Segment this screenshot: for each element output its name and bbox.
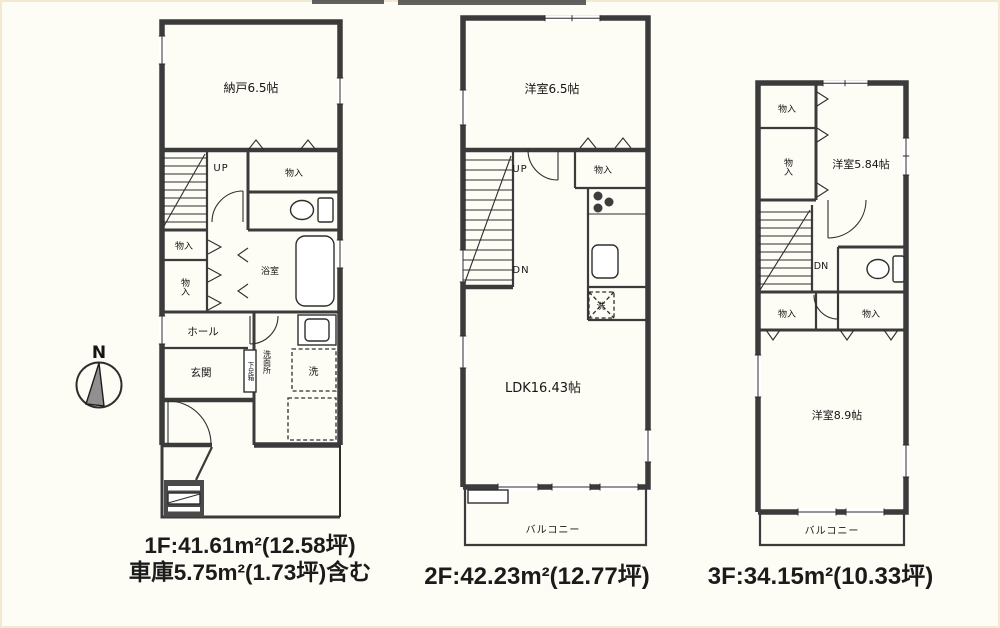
floor3-toilet-icon (867, 256, 904, 282)
room-label-storage: 納戸6.5帖 (223, 80, 278, 95)
room-label-dn: DN (512, 265, 529, 276)
floor1-sink-counter-icon (298, 315, 336, 345)
floor1-area-label: 1F:41.61m²(12.58坪) 車庫5.75m²(1.73坪)含む (100, 532, 400, 586)
room-label-balcony: バルコニー (805, 525, 860, 537)
room-label-bath: 浴室 (261, 265, 279, 277)
room-label-closet-c: 物入 (179, 277, 190, 296)
room-label-bedroom584: 洋室5.84帖 (832, 157, 890, 171)
floor2-sink-icon (592, 245, 618, 278)
floor2-stairs-icon (463, 156, 513, 282)
floor1-area-line1: 1F:41.61m²(12.58坪) (100, 532, 400, 559)
floor3-walls (758, 83, 906, 512)
room-label-closet: 物入 (594, 164, 612, 176)
room-label-bedroom65: 洋室6.5帖 (524, 81, 579, 96)
room-label-shoebox: 下足箱 (246, 361, 254, 382)
floor3-room-labels: 物入 物入 洋室5.84帖 DN 物入 物入 洋室8.9帖 バルコニー (778, 103, 890, 537)
room-label-up: UP (512, 164, 527, 175)
floor2-folding-door-marks (580, 138, 631, 148)
room-label-washer: 洗 (597, 301, 606, 312)
floorplan-sheet: N (0, 0, 1000, 628)
floor1-bathtub-icon (296, 236, 334, 306)
room-label-up: UP (213, 163, 228, 174)
scan-artifact-2 (398, 0, 586, 5)
room-label-closet-top: 物入 (778, 103, 796, 115)
floor2-area-label: 2F:42.23m²(12.77坪) (402, 556, 672, 591)
floor2-plan: 洋室6.5帖 UP DN 物入 洗 LDK16.43帖 バルコニー (455, 10, 655, 555)
room-label-bedroom89: 洋室8.9帖 (812, 408, 863, 422)
floor2-door-arc (528, 150, 558, 180)
floor1-area-line2: 車庫5.75m²(1.73坪)含む (100, 559, 400, 586)
floor3-windows (755, 80, 909, 515)
compass: N (60, 330, 140, 415)
floor3-stairs-icon (758, 210, 812, 290)
floor3-door-arcs (814, 200, 866, 319)
room-label-entrance: 玄関 (191, 366, 212, 379)
floor3-folding-door-marks (766, 92, 898, 340)
floor1-toilet-icon (291, 198, 334, 222)
compass-needle-icon (86, 363, 104, 406)
room-label-washer: 洗 (309, 366, 320, 378)
room-label-washroom: 洗面所 (263, 349, 272, 375)
room-label-closet-ll: 物入 (778, 308, 796, 320)
room-label-closet-lr: 物入 (862, 308, 880, 320)
floor2-stove-icon (588, 192, 648, 215)
floor1-entry-steps-icon (164, 480, 204, 517)
room-label-hall: ホール (187, 326, 219, 338)
floor3-plan: 物入 物入 洋室5.84帖 DN 物入 物入 洋室8.9帖 バルコニー (753, 78, 913, 558)
scan-artifact-1 (312, 0, 384, 4)
floor3-area-label: 3F:34.15m²(10.33坪) (698, 556, 943, 591)
room-label-closet-b: 物入 (175, 240, 193, 252)
floor2-balcony (465, 487, 646, 545)
room-label-closet-mid: 物入 (782, 157, 793, 176)
compass-north-label: N (92, 343, 106, 363)
room-label-ldk: LDK16.43帖 (505, 381, 581, 396)
floor1-dashed-area (288, 398, 336, 440)
floor1-plan: 納戸6.5帖 UP 物入 物入 物入 浴室 ホール 玄関 下足箱 洗面所 洗 (155, 15, 350, 525)
room-label-dn: DN (814, 261, 828, 272)
floor1-stairs-icon (162, 154, 207, 226)
room-label-closet-a: 物入 (285, 167, 303, 179)
room-label-balcony: バルコニー (526, 524, 581, 536)
